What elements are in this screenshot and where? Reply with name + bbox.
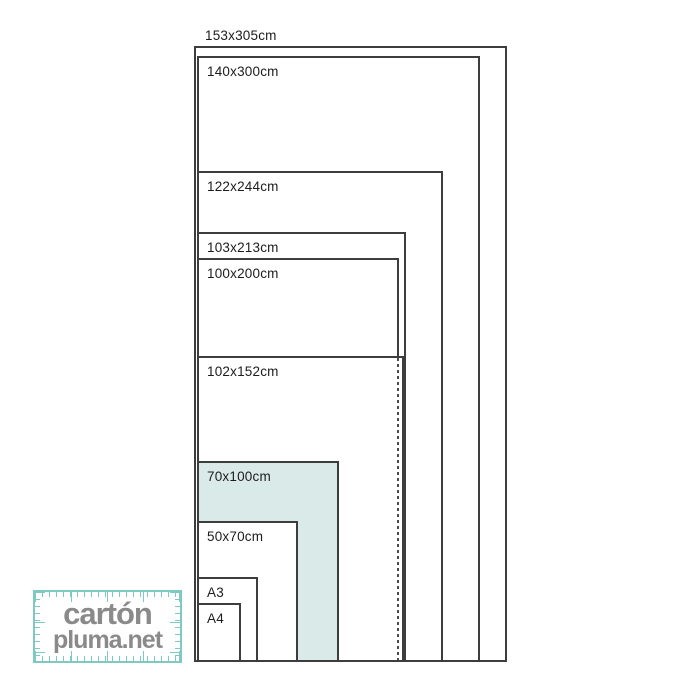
size-label: A4 (207, 611, 224, 626)
size-label: 140x300cm (207, 64, 279, 79)
size-label: 153x305cm (205, 28, 277, 43)
size-label: 100x200cm (207, 266, 279, 281)
size-label: 103x213cm (207, 240, 279, 255)
size-label: 50x70cm (207, 529, 263, 544)
size-label: 122x244cm (207, 179, 279, 194)
cartonpluma-logo: cartón pluma.net (33, 590, 182, 663)
size-box-a4: A4 (197, 603, 241, 662)
hidden-edge-dashed-line (397, 358, 399, 660)
size-label: 102x152cm (207, 364, 279, 379)
size-comparison-diagram: 153x305cm 140x300cm 122x244cm 103x213cm … (0, 0, 690, 690)
size-label: A3 (207, 585, 224, 600)
size-label: 70x100cm (207, 469, 271, 484)
logo-word-carton: cartón (35, 600, 180, 628)
logo-word-plumanet: pluma.net (35, 628, 180, 653)
